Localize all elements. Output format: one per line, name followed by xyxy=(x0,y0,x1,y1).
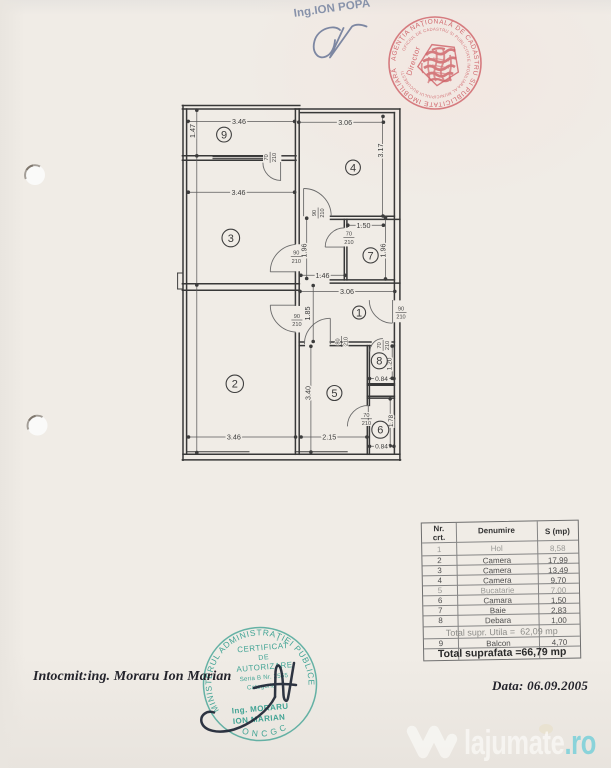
svg-text:90: 90 xyxy=(398,307,404,313)
svg-text:0.84: 0.84 xyxy=(375,444,388,451)
svg-text:CERTIFICAT: CERTIFICAT xyxy=(237,641,289,654)
svg-text:1.46: 1.46 xyxy=(316,271,330,280)
svg-text:Director: Director xyxy=(404,45,422,77)
svg-text:3.46: 3.46 xyxy=(232,117,246,126)
svg-text:1.85: 1.85 xyxy=(303,307,312,321)
svg-text:1.47: 1.47 xyxy=(188,124,197,138)
svg-text:2.15: 2.15 xyxy=(322,433,336,442)
svg-text:AGENŢIA NAŢIONALĂ DE CADASTRU: AGENŢIA NAŢIONALĂ DE CADASTRU SI PUBLICI… xyxy=(0,0,480,108)
svg-text:210: 210 xyxy=(396,315,405,321)
svg-text:70: 70 xyxy=(346,232,352,238)
svg-text:70: 70 xyxy=(377,342,383,348)
svg-text:1.50: 1.50 xyxy=(357,221,371,230)
svg-text:G: G xyxy=(269,726,278,737)
svg-text:N: N xyxy=(251,728,258,739)
svg-text:3.40: 3.40 xyxy=(304,386,313,400)
svg-text:70: 70 xyxy=(363,413,369,419)
svg-text:210: 210 xyxy=(343,337,349,346)
svg-text:1.96: 1.96 xyxy=(379,244,388,258)
svg-text:3.17: 3.17 xyxy=(376,144,385,158)
svg-text:210: 210 xyxy=(385,341,391,350)
svg-text:8: 8 xyxy=(376,356,382,368)
svg-text:3.46: 3.46 xyxy=(227,433,241,442)
svg-text:210: 210 xyxy=(344,240,353,246)
svg-text:90: 90 xyxy=(293,251,299,257)
svg-text:90: 90 xyxy=(312,210,318,216)
svg-text:7: 7 xyxy=(368,250,374,262)
svg-text:5: 5 xyxy=(331,388,337,400)
svg-text:210: 210 xyxy=(292,259,301,265)
svg-text:1.78: 1.78 xyxy=(388,414,395,427)
svg-text:0.84: 0.84 xyxy=(375,376,388,383)
svg-text:70: 70 xyxy=(264,154,270,160)
svg-text:C: C xyxy=(261,728,268,738)
svg-text:3.46: 3.46 xyxy=(232,188,246,197)
svg-text:DE: DE xyxy=(258,654,269,662)
svg-text:6: 6 xyxy=(377,425,383,437)
svg-text:2: 2 xyxy=(232,379,238,391)
svg-text:3.06: 3.06 xyxy=(340,287,354,296)
svg-text:210: 210 xyxy=(320,208,326,217)
svg-text:1.96: 1.96 xyxy=(300,244,309,258)
svg-text:210: 210 xyxy=(362,421,371,427)
svg-text:80: 80 xyxy=(335,338,341,344)
svg-text:1: 1 xyxy=(356,308,362,320)
svg-text:90: 90 xyxy=(294,314,300,320)
svg-text:9: 9 xyxy=(221,130,227,142)
svg-text:4: 4 xyxy=(350,162,356,174)
svg-text:210: 210 xyxy=(292,322,301,328)
svg-text:3.06: 3.06 xyxy=(338,118,352,127)
svg-text:C: C xyxy=(278,722,288,734)
svg-text:3: 3 xyxy=(228,233,234,245)
svg-text:210: 210 xyxy=(272,153,278,162)
